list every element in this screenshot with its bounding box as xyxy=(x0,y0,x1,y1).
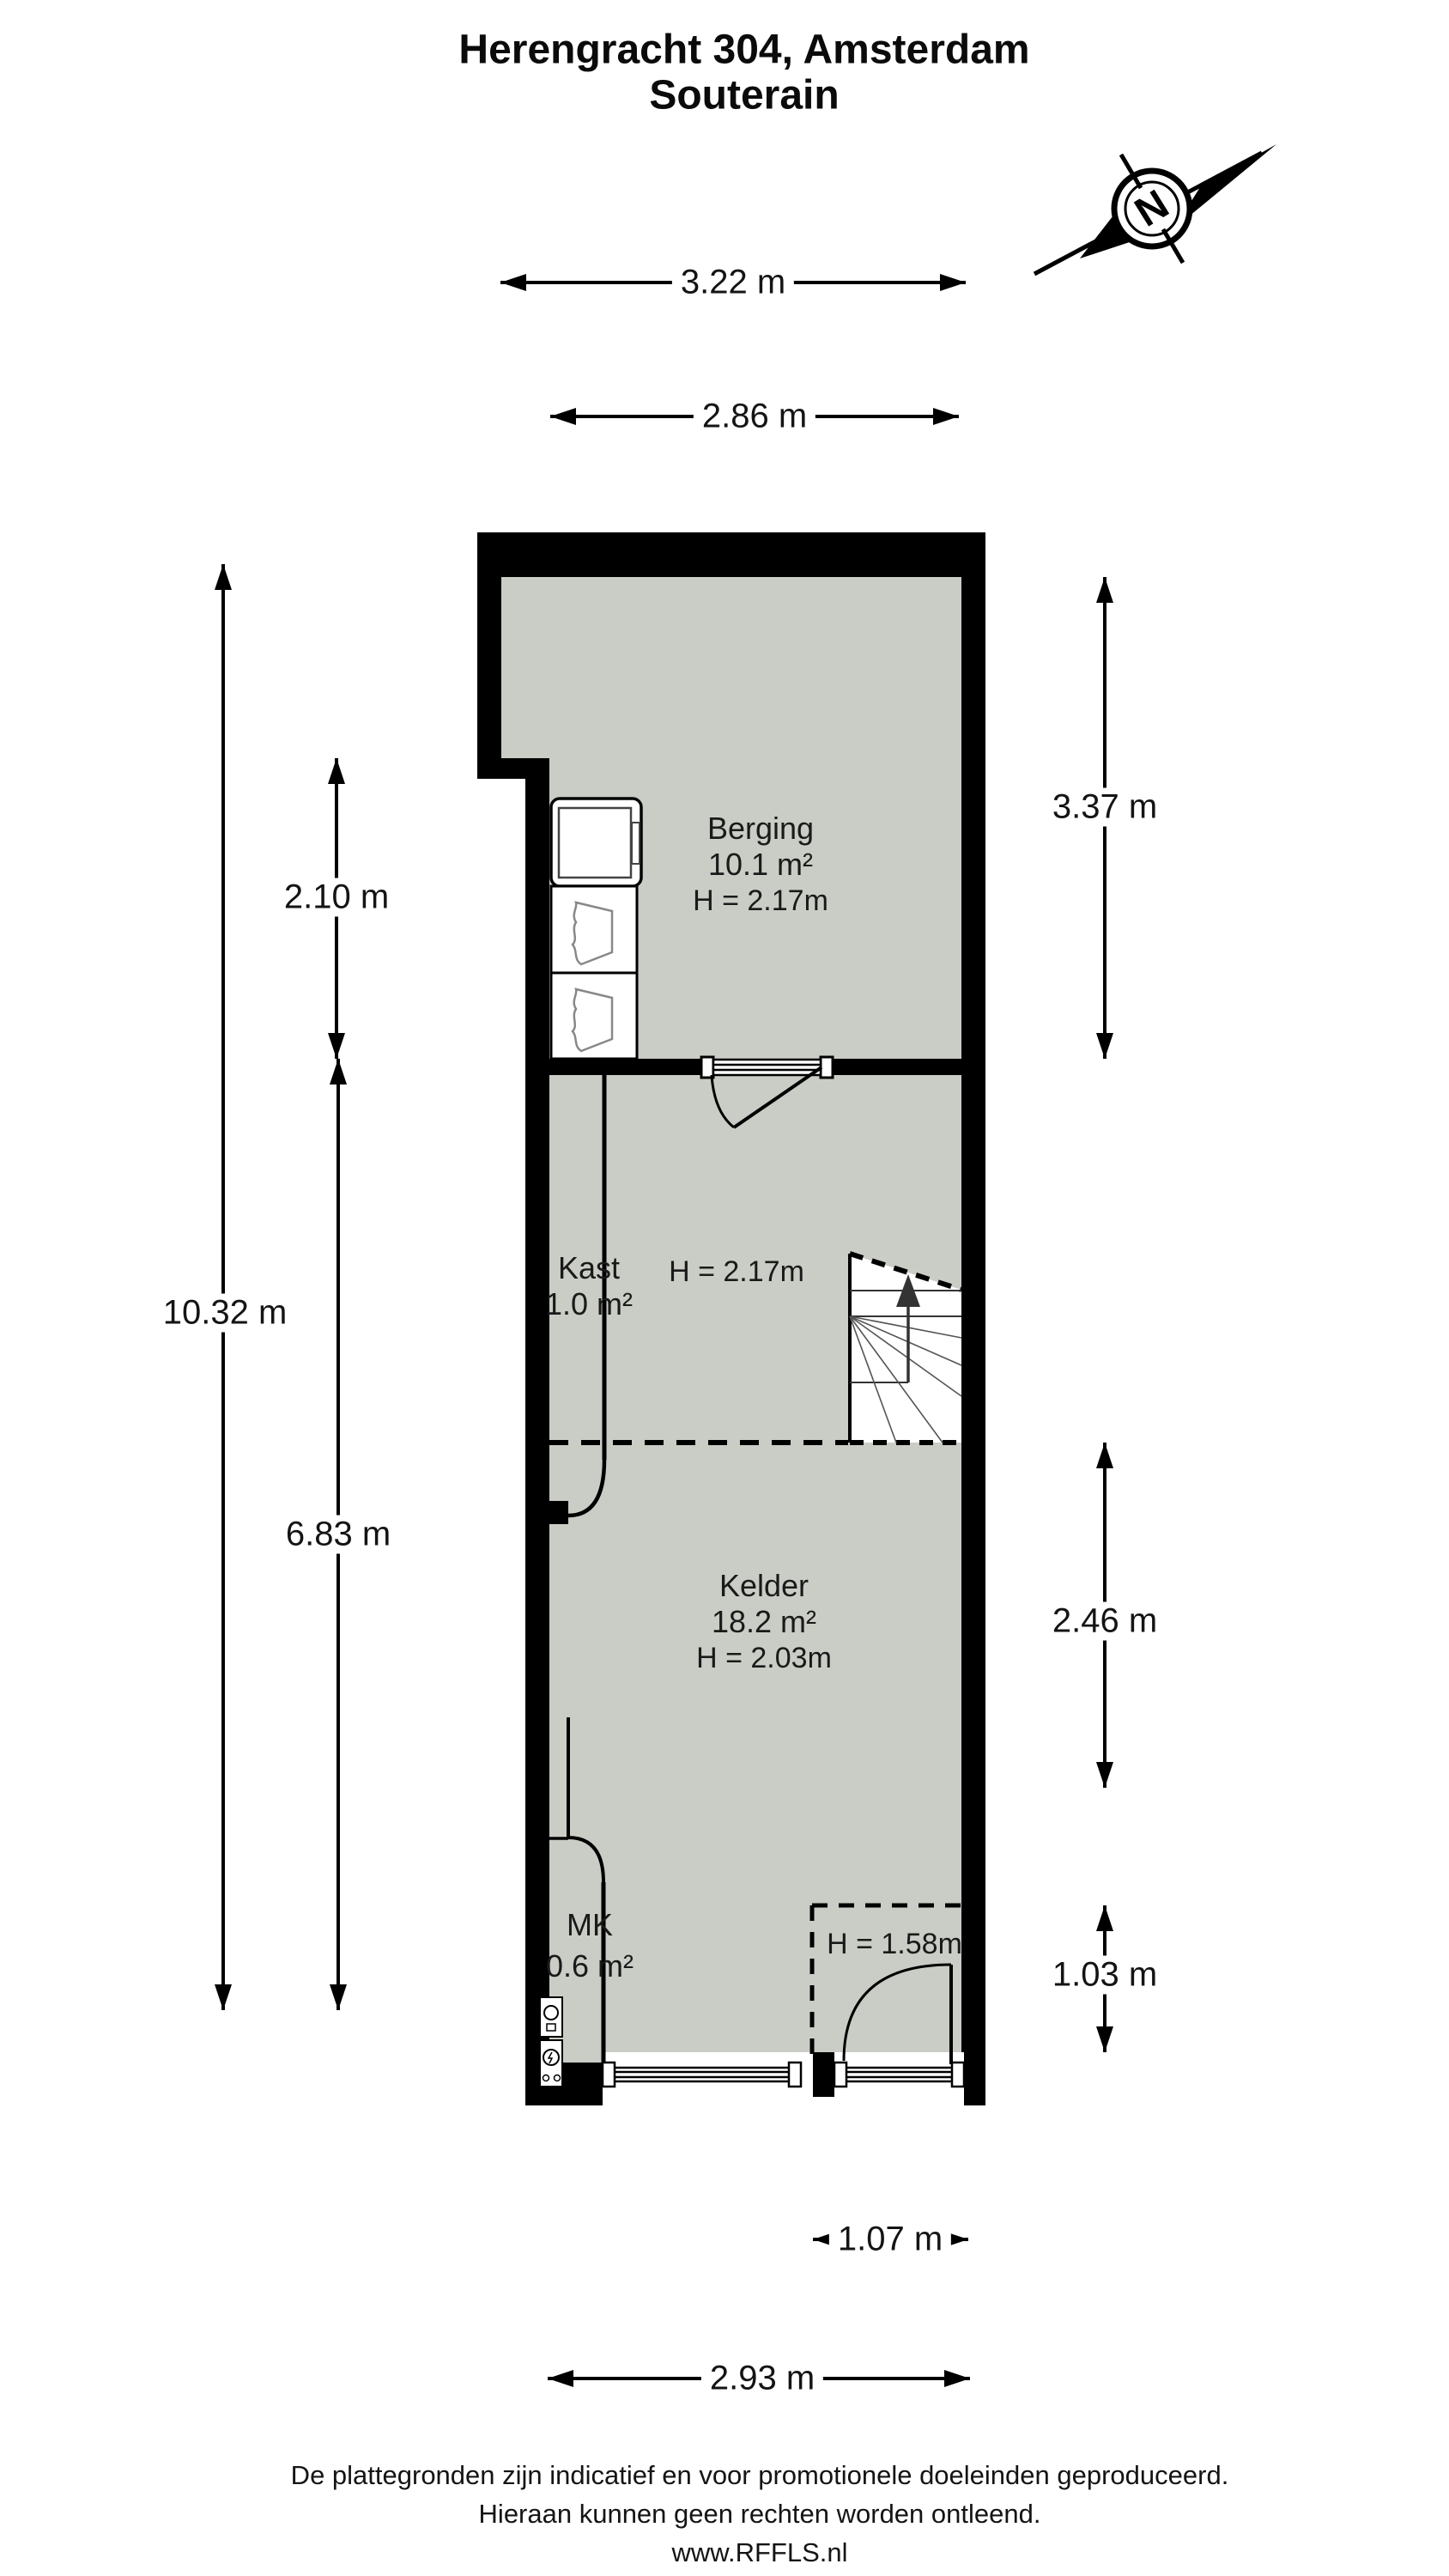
room-area: 10.1 m² xyxy=(693,847,828,883)
room-height: H = 2.03m xyxy=(696,1640,832,1676)
appliances-berging xyxy=(551,799,641,1059)
dim-bottom-door: 1.07 m xyxy=(829,2221,951,2259)
room-height: H = 2.17m xyxy=(693,883,828,919)
door-berging-threshold xyxy=(713,1060,821,1075)
low-ceiling-label: H = 1.58m xyxy=(827,1926,962,1962)
dim-top-inner: 2.86 m xyxy=(694,398,815,436)
footer-website: www.RFFLS.nl xyxy=(672,2537,848,2568)
dim-right-berging: 3.37 m xyxy=(1044,788,1166,827)
window-recess-right xyxy=(834,2052,964,2105)
wall-kast-stub xyxy=(549,1501,568,1524)
page-title-line2: Souterain xyxy=(649,72,839,119)
wall-left-notch xyxy=(477,758,549,779)
room-label-mk: MK 0.6 m² xyxy=(546,1905,634,1987)
room-name: Kelder xyxy=(696,1568,832,1604)
footer-disclaimer-line2: Hieraan kunnen geen rechten worden ontle… xyxy=(479,2499,1041,2530)
wall-left-upper xyxy=(477,577,501,760)
wall-divider-left xyxy=(549,1059,701,1075)
room-area: 0.6 m² xyxy=(546,1946,634,1987)
room-area: 1.0 m² xyxy=(545,1286,633,1322)
room-name: Kast xyxy=(545,1250,633,1286)
room-label-kast: Kast 1.0 m² xyxy=(545,1250,633,1322)
wall-divider-right xyxy=(833,1059,961,1075)
wall-bottom-stub xyxy=(813,2052,834,2097)
room-area: 18.2 m² xyxy=(696,1604,832,1640)
wall-top xyxy=(477,532,985,577)
room-label-berging: Berging 10.1 m² H = 2.17m xyxy=(693,811,828,919)
dim-right-entry: 1.03 m xyxy=(1044,1956,1166,1995)
dim-top-outer: 3.22 m xyxy=(672,264,794,302)
floorplan-page: N Herengracht 304, Amsterdam Souterain 3… xyxy=(0,0,1449,2576)
dim-right-kelder: 2.46 m xyxy=(1044,1602,1166,1641)
footer-disclaimer-line1: De plattegronden zijn indicatief en voor… xyxy=(291,2460,1229,2491)
room-name: Berging xyxy=(693,811,828,847)
dim-left-berging: 2.10 m xyxy=(276,878,397,917)
washing-machine-door xyxy=(559,808,631,878)
stairs xyxy=(850,1254,961,1443)
meter-icons xyxy=(540,1997,562,2087)
dim-left-kelder: 6.83 m xyxy=(277,1516,399,1554)
room-name: MK xyxy=(546,1905,634,1946)
page-title-line1: Herengracht 304, Amsterdam xyxy=(458,27,1029,74)
room-height-kast: H = 2.17m xyxy=(669,1254,804,1290)
room-label-kelder: Kelder 18.2 m² H = 2.03m xyxy=(696,1568,832,1676)
north-compass: N xyxy=(1034,144,1276,274)
dim-bottom-width: 2.93 m xyxy=(701,2360,823,2398)
wall-right xyxy=(961,577,985,2105)
dim-left-total: 10.32 m xyxy=(155,1294,296,1333)
window-recess-left xyxy=(603,2052,813,2105)
washing-machine-handle xyxy=(632,823,640,864)
bottom-windows xyxy=(603,2052,964,2105)
